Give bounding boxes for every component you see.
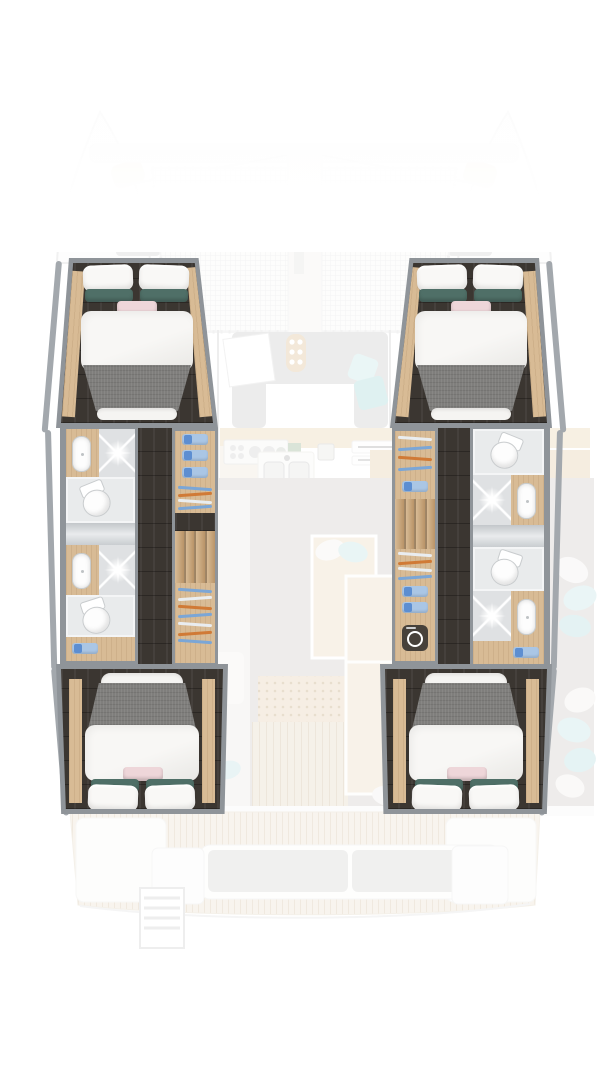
shower-icon [473,591,511,641]
shower-icon [99,545,135,595]
starboard-storage-column [392,428,438,664]
step-tread [395,499,406,549]
towel-icon [72,643,98,654]
step-tread [196,531,207,583]
pillow [83,264,134,292]
duvet [415,311,527,371]
bed-side-shelf [393,679,406,803]
hanger-icon [398,445,432,450]
stern-bench [152,845,508,904]
step-tread [186,531,197,583]
port-doorway [175,513,215,531]
starboard-toilet-room [473,429,544,475]
starboard-toilet-room-aft [473,547,544,591]
starboard-forward-bathroom-vanity [473,475,544,525]
step-tread [406,499,417,549]
towel-icon [182,434,208,445]
bed-side-shelf [202,679,215,803]
hanger-icon [178,630,212,635]
galley-hatch [318,444,334,460]
catamaran-floor-plan [0,0,608,1080]
toilet-icon [75,595,114,637]
port-companionway-steps [175,531,215,583]
shower-icon [99,429,135,477]
step-tread [427,499,436,549]
port-hanging-rod [175,483,215,513]
toilet-icon [486,547,525,589]
gray-throw-blanket [88,683,196,729]
toilet-icon [75,478,116,521]
port-towel-cubby [66,637,135,661]
pillow [473,264,524,292]
sink-icon [517,599,536,635]
pillow [412,784,463,812]
hanger-icon [178,588,212,593]
pillow [145,784,196,812]
port-toilet-room [66,477,135,523]
port-aft-cabin [56,664,228,814]
gray-throw-blanket [417,365,525,411]
port-wardrobe [175,583,215,649]
pillow [417,264,468,292]
hanger-icon [178,605,212,610]
port-forward-bathroom-vanity [66,429,135,477]
hanger-icon [178,596,212,601]
port-shelf [175,649,215,663]
saloon-door-panel [286,334,306,372]
hanger-icon [398,455,432,460]
hanger-icon [398,567,432,572]
aft-deck [70,806,594,948]
towel-icon [402,481,428,492]
starboard-aft-cabin [380,664,552,814]
saloon-table [223,333,275,387]
toilet-icon [486,430,527,473]
sink-icon [517,483,536,519]
starboard-wardrobe [395,431,435,475]
mattress-foot [97,408,177,420]
pillow [469,784,520,812]
bed-side-shelf [526,679,539,803]
wood-floor-strip [252,722,348,812]
frosted-divider [473,525,544,547]
hanger-icon [178,486,212,491]
starboard-aft-bed [409,673,523,807]
towel-icon [513,647,539,658]
starboard-forward-cabin [390,258,552,428]
starboard-companionway-steps [395,499,435,549]
hanger-icon [178,505,212,510]
hanger-icon [398,435,432,440]
stern-fade-overlay [0,0,608,252]
sink-icon [72,553,91,589]
gray-throw-blanket [412,683,520,729]
starboard-aft-bathroom-vanity [473,591,544,641]
hanger-icon [178,639,212,644]
duvet [81,311,193,371]
mattress-foot [431,408,511,420]
hanger-icon [178,492,212,497]
port-toilet-room-aft [66,595,135,637]
step-tread [416,499,427,549]
starboard-hanging-rod [395,549,435,583]
starboard-forward-bed [415,265,527,421]
starboard-towel-cubby [395,475,435,499]
step-tread [175,531,186,583]
port-forward-cabin [56,258,218,428]
step-tread [207,531,216,583]
shower-icon [473,475,511,525]
port-aft-bed [85,673,199,807]
port-aft-bathroom-vanity [66,545,135,595]
swim-ladder-icon [140,888,184,948]
starboard-towel-cubby-aft [473,641,544,665]
hanger-icon [398,465,432,470]
sink-icon [72,436,91,472]
hanger-icon [178,622,212,627]
washing-machine-icon [402,625,428,651]
towel-icon [402,602,428,613]
starboard-towel-shelves [395,583,435,617]
towel-icon [182,467,208,478]
hanger-icon [178,613,212,618]
port-forward-bed [81,265,193,421]
gray-throw-blanket [83,365,191,411]
saloon [223,332,389,428]
towel-icon [402,586,428,597]
hanger-icon [398,552,432,557]
bed-side-shelf [69,679,82,803]
towel-icon [182,450,208,461]
port-bathroom-column [60,426,138,664]
hanger-icon [178,499,212,504]
pillow [139,264,190,292]
port-storage-column [172,428,218,666]
port-towel-shelves [175,431,215,483]
starboard-washer-cabinet [395,617,435,661]
hanger-icon [398,575,432,580]
hanger-icon [398,560,432,565]
pillow [88,784,139,812]
frosted-divider [66,523,135,545]
starboard-bathroom-column [470,426,550,668]
